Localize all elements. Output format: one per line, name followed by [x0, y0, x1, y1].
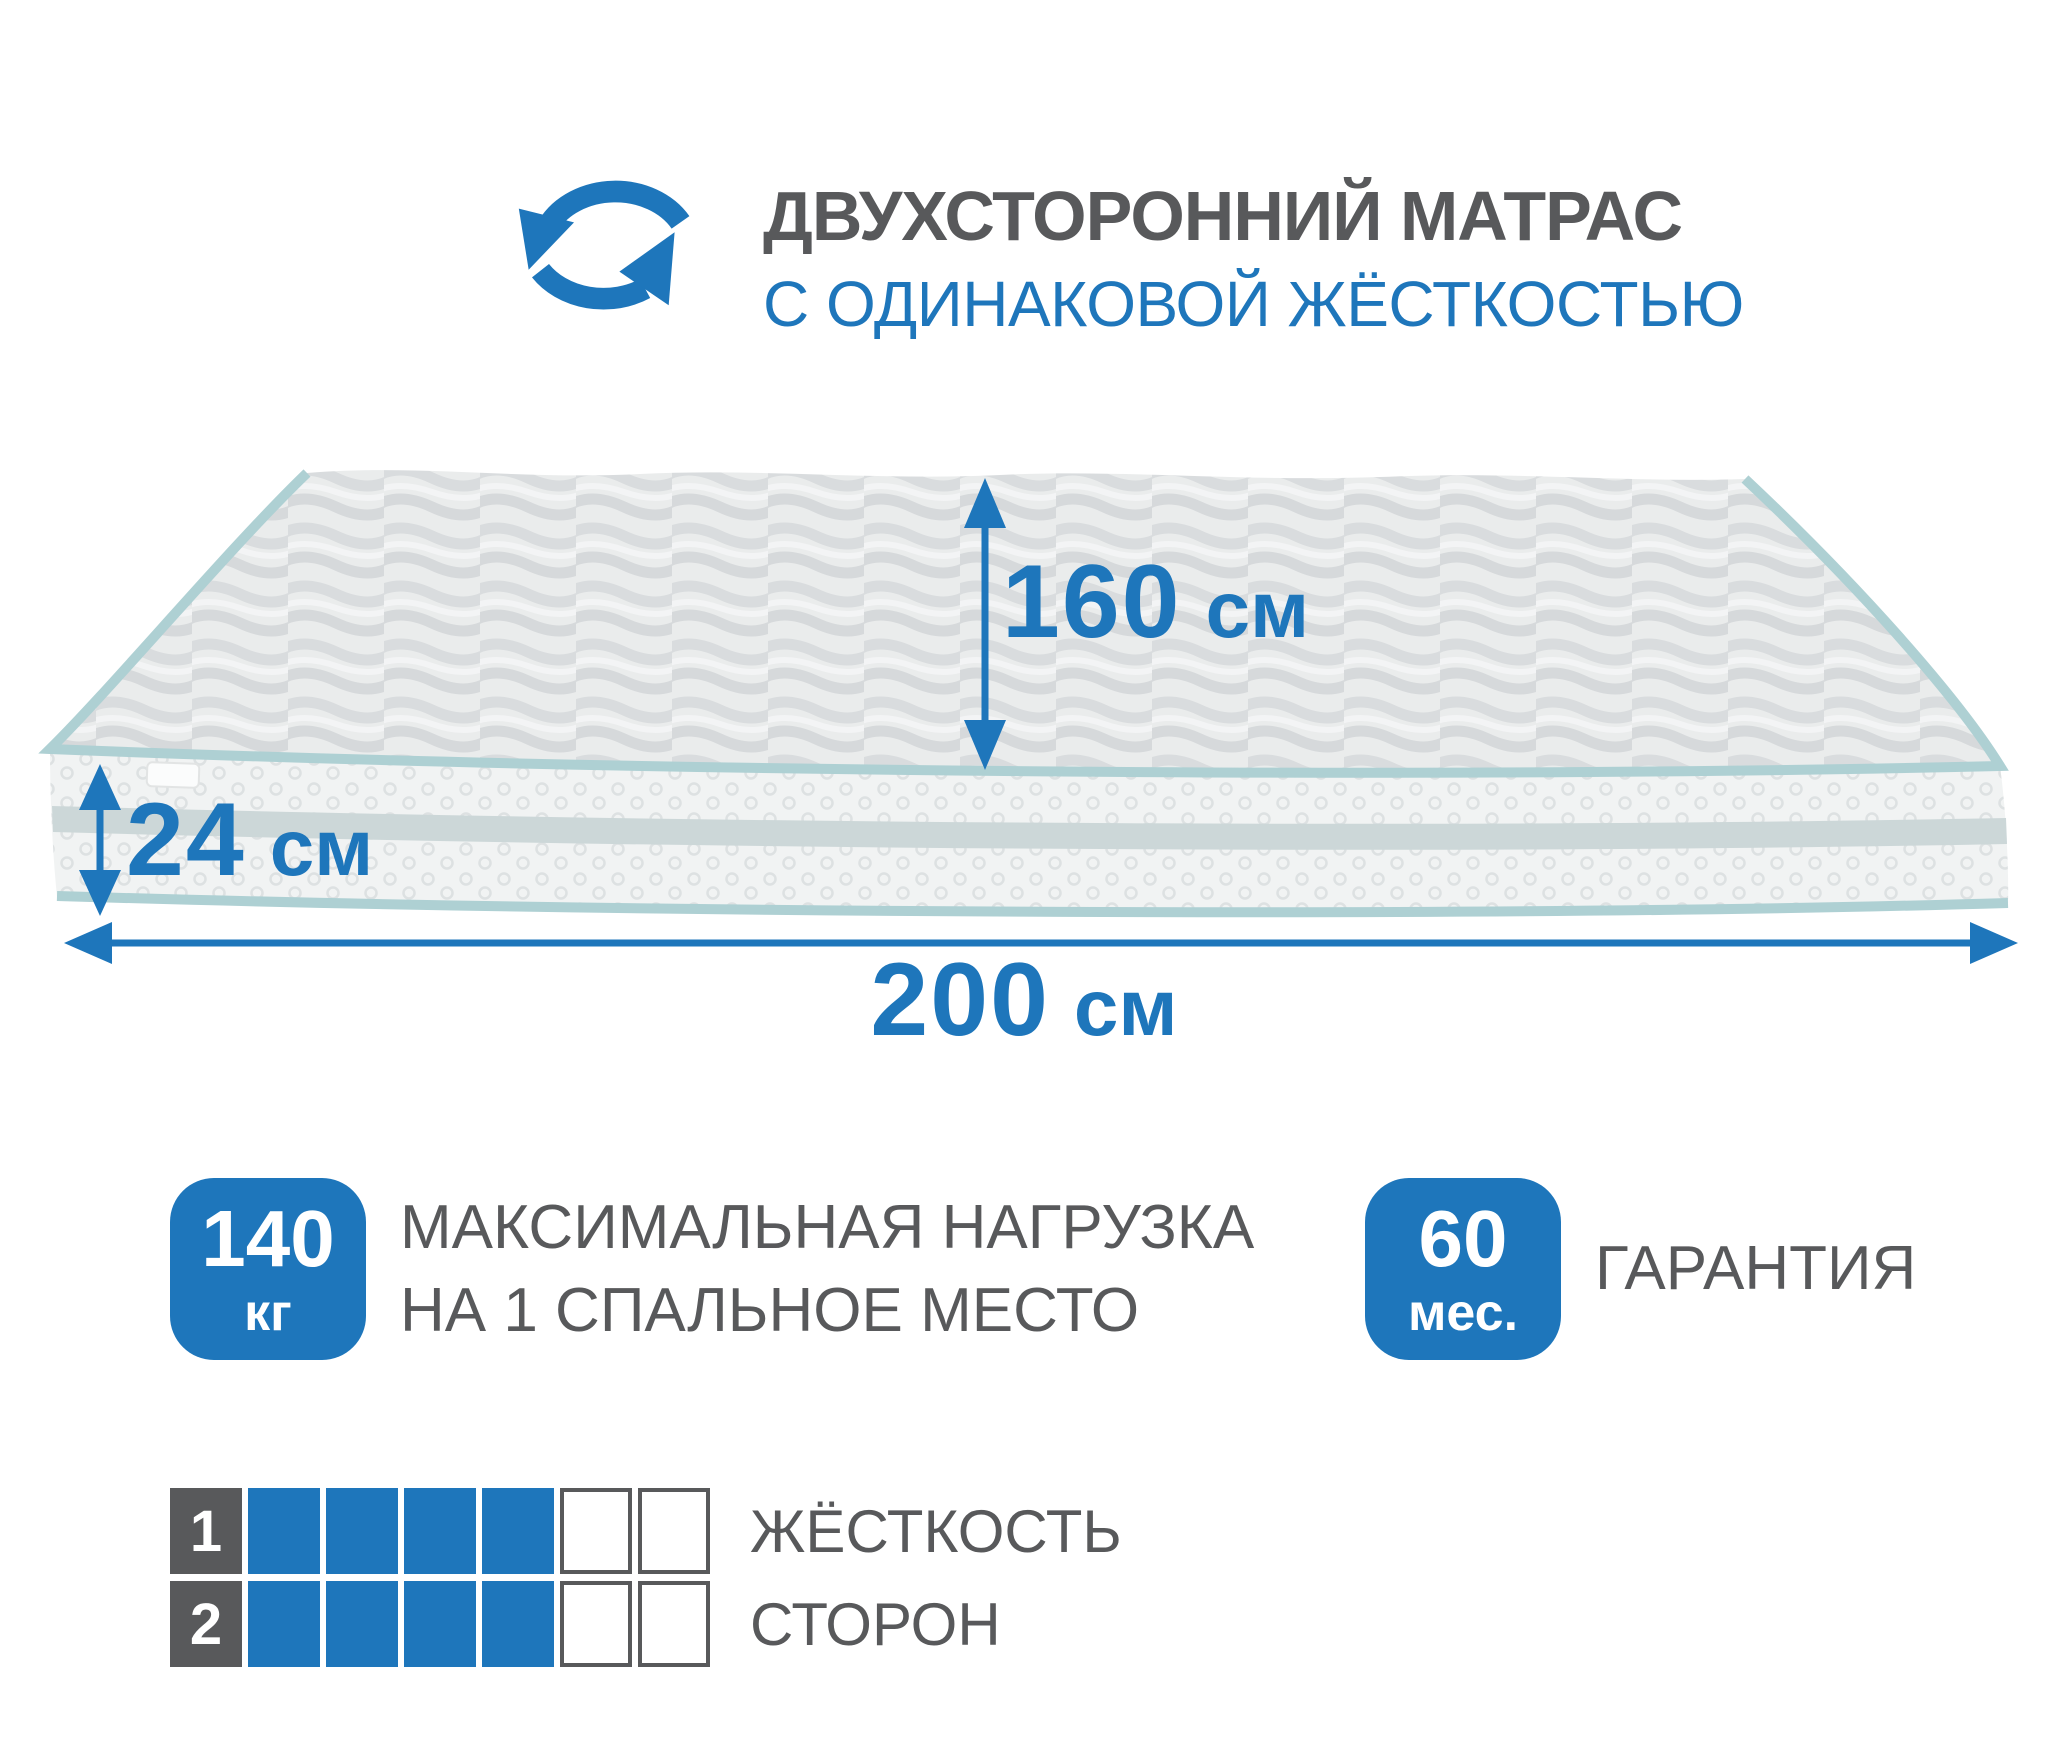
dimension-label-height: 24 см: [126, 788, 373, 892]
firmness-row: 1: [170, 1488, 710, 1574]
badge-unit: кг: [244, 1287, 292, 1339]
firmness-cell-filled: [482, 1488, 554, 1574]
firmness-cell-filled: [404, 1581, 476, 1667]
firmness-cell-filled: [248, 1488, 320, 1574]
badge-unit: мес.: [1408, 1287, 1518, 1339]
firmness-caption: ЖЁСТКОСТЬ СТОРОН: [750, 1488, 1122, 1667]
firmness-cell-empty: [638, 1488, 710, 1574]
firmness-cell-filled: [248, 1581, 320, 1667]
dimension-value: 200: [870, 948, 1050, 1052]
warranty-caption: ГАРАНТИЯ: [1595, 1227, 1916, 1310]
max-load-badge: 140 кг: [170, 1178, 366, 1360]
firmness-scale: 12 ЖЁСТКОСТЬ СТОРОН: [170, 1488, 1122, 1667]
warranty-badge: 60 мес.: [1365, 1178, 1561, 1360]
mattress-infographic: ДВУХСТОРОННИЙ МАТРАС С ОДИНАКОВОЙ ЖЁСТКО…: [0, 0, 2048, 1757]
firmness-row-number: 2: [170, 1581, 242, 1667]
firmness-caption-line: СТОРОН: [750, 1581, 1122, 1667]
firmness-cell-filled: [482, 1581, 554, 1667]
dimension-label-width: 160 см: [1002, 550, 1309, 654]
feature-max-load: 140 кг МАКСИМАЛЬНАЯ НАГРУЗКА НА 1 СПАЛЬН…: [170, 1178, 1254, 1360]
caption-line: ГАРАНТИЯ: [1595, 1227, 1916, 1310]
dimension-unit: см: [1074, 968, 1178, 1048]
badge-value: 60: [1419, 1199, 1508, 1279]
caption-line: МАКСИМАЛЬНАЯ НАГРУЗКА: [400, 1186, 1254, 1269]
firmness-cell-empty: [638, 1581, 710, 1667]
dimension-unit: см: [270, 808, 374, 888]
dimension-value: 24: [126, 788, 246, 892]
firmness-cell-filled: [326, 1488, 398, 1574]
firmness-cell-empty: [560, 1488, 632, 1574]
firmness-scale-rows: 12: [170, 1488, 710, 1667]
dimension-label-length: 200 см: [0, 948, 2048, 1052]
caption-line: НА 1 СПАЛЬНОЕ МЕСТО: [400, 1269, 1254, 1352]
dimension-unit: см: [1206, 570, 1310, 650]
dimension-value: 160: [1002, 550, 1182, 654]
badge-value: 140: [201, 1199, 334, 1279]
feature-warranty: 60 мес. ГАРАНТИЯ: [1365, 1178, 1916, 1360]
firmness-row-number: 1: [170, 1488, 242, 1574]
max-load-caption: МАКСИМАЛЬНАЯ НАГРУЗКА НА 1 СПАЛЬНОЕ МЕСТ…: [400, 1186, 1254, 1352]
firmness-caption-line: ЖЁСТКОСТЬ: [750, 1488, 1122, 1574]
firmness-row: 2: [170, 1581, 710, 1667]
firmness-cell-filled: [326, 1581, 398, 1667]
firmness-cell-filled: [404, 1488, 476, 1574]
firmness-cell-empty: [560, 1581, 632, 1667]
